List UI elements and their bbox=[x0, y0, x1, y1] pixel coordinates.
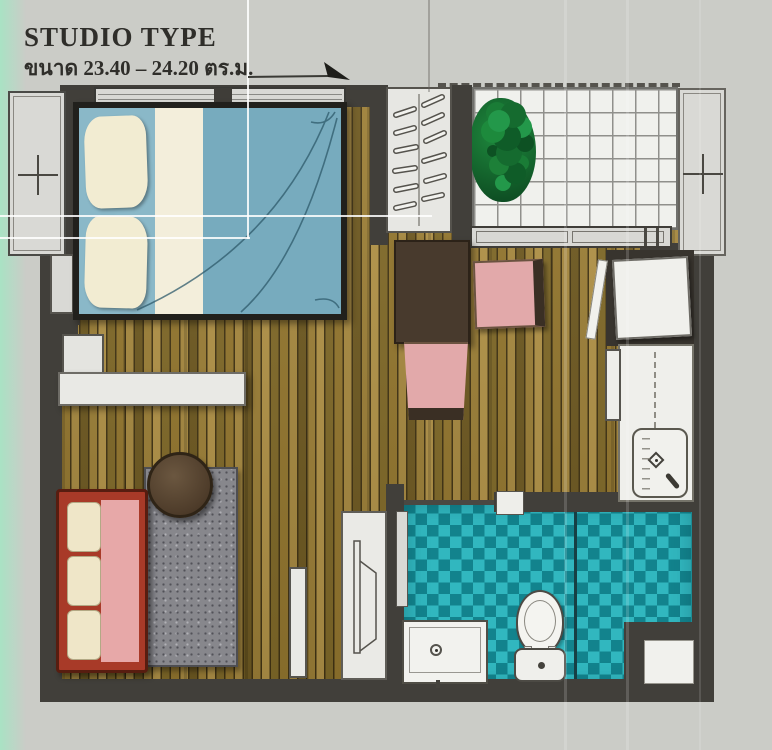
page-subtitle: ขนาด 23.40 – 24.20 ตร.ม. bbox=[24, 52, 253, 85]
paper-crease bbox=[699, 0, 701, 750]
shower-partition-line bbox=[574, 510, 577, 688]
overlay-line-horizontal bbox=[0, 215, 432, 217]
faucet-dot bbox=[655, 459, 658, 462]
toilet-bowl bbox=[516, 590, 564, 654]
counter-side-panel bbox=[605, 349, 621, 421]
kitchen-sink bbox=[632, 428, 688, 498]
slim-shelf bbox=[289, 567, 307, 678]
door-track-tick bbox=[656, 228, 659, 246]
door-track-tick bbox=[644, 228, 647, 246]
paper-crease bbox=[564, 0, 567, 750]
floor-plan-page: STUDIO TYPE ขนาด 23.40 – 24.20 ตร.ม. bbox=[0, 0, 772, 750]
window-plus-icon bbox=[683, 154, 723, 194]
wall-right bbox=[692, 250, 714, 702]
bathroom-door-leaf bbox=[496, 491, 524, 515]
desk-shelf bbox=[58, 372, 246, 406]
tv-icon bbox=[343, 513, 385, 678]
vanity-drain-dot bbox=[436, 680, 440, 688]
sink-tick-marks bbox=[642, 438, 650, 492]
toilet-tank bbox=[514, 648, 566, 682]
annotation-arrow-icon bbox=[242, 50, 362, 94]
overlay-line-horizontal bbox=[0, 237, 250, 239]
bed-drape-arcs bbox=[79, 108, 341, 314]
page-title: STUDIO TYPE bbox=[24, 22, 217, 53]
plant-foliage bbox=[488, 110, 510, 132]
paper-crease bbox=[428, 0, 430, 92]
sofa-cushion bbox=[67, 610, 101, 660]
sliding-door-panel bbox=[476, 231, 568, 243]
vanity-sink bbox=[402, 620, 488, 684]
sliding-door-panel bbox=[572, 231, 664, 243]
balcony-parapet-dashed-line bbox=[438, 83, 680, 87]
right-ac-ledge bbox=[678, 88, 726, 256]
left-window-ledge bbox=[8, 91, 66, 256]
double-bed bbox=[73, 102, 347, 320]
wall-closet-right bbox=[452, 85, 472, 245]
left-small-panel bbox=[50, 254, 74, 314]
sofa-cushion bbox=[67, 556, 101, 606]
bathroom-threshold bbox=[404, 500, 496, 505]
service-niche bbox=[644, 640, 694, 684]
sofa-cushion bbox=[67, 502, 101, 552]
refrigerator bbox=[612, 256, 692, 340]
window-plus-icon bbox=[18, 155, 58, 195]
dining-table bbox=[394, 240, 470, 344]
round-coffee-table bbox=[147, 452, 213, 518]
overlay-line-vertical bbox=[247, 0, 249, 239]
toilet-seat-line bbox=[524, 600, 556, 642]
dining-chair-right bbox=[473, 259, 545, 329]
dining-chair-bottom bbox=[402, 342, 470, 420]
sofa-seat bbox=[101, 500, 139, 662]
vanity-faucet-dot bbox=[435, 649, 438, 652]
vanity-inner-frame bbox=[409, 627, 481, 673]
tv-cabinet bbox=[341, 511, 387, 680]
balcony-sliding-door bbox=[470, 226, 672, 248]
sink-handle bbox=[665, 472, 680, 489]
flush-button bbox=[538, 662, 545, 669]
hangers-icon bbox=[388, 89, 450, 231]
bathroom-sliding-panel bbox=[396, 511, 408, 607]
paper-crease bbox=[626, 0, 629, 750]
sofa bbox=[56, 489, 148, 673]
wall-bottom bbox=[40, 679, 712, 702]
wardrobe bbox=[386, 87, 452, 233]
